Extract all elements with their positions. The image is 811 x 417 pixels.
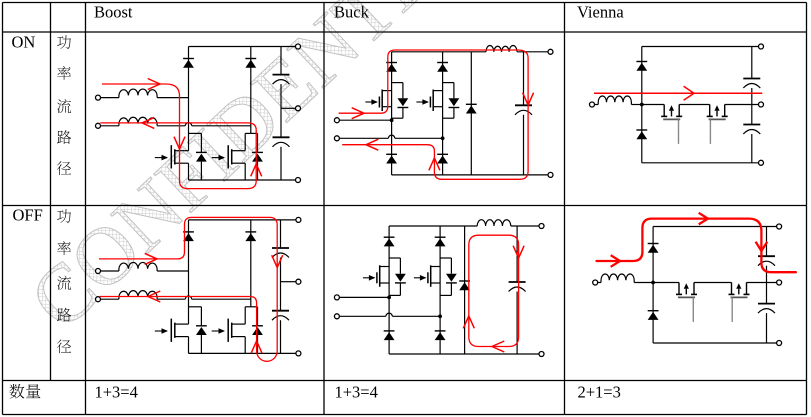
svg-text:Buck: Buck <box>334 3 370 22</box>
svg-text:1+3=4: 1+3=4 <box>95 383 138 402</box>
svg-text:OFF: OFF <box>13 206 43 225</box>
svg-text:2+1=3: 2+1=3 <box>578 383 621 402</box>
svg-text:Vienna: Vienna <box>577 3 624 22</box>
svg-text:Boost: Boost <box>94 3 133 22</box>
svg-text:ON: ON <box>12 32 36 51</box>
svg-text:1+3=4: 1+3=4 <box>335 383 378 402</box>
